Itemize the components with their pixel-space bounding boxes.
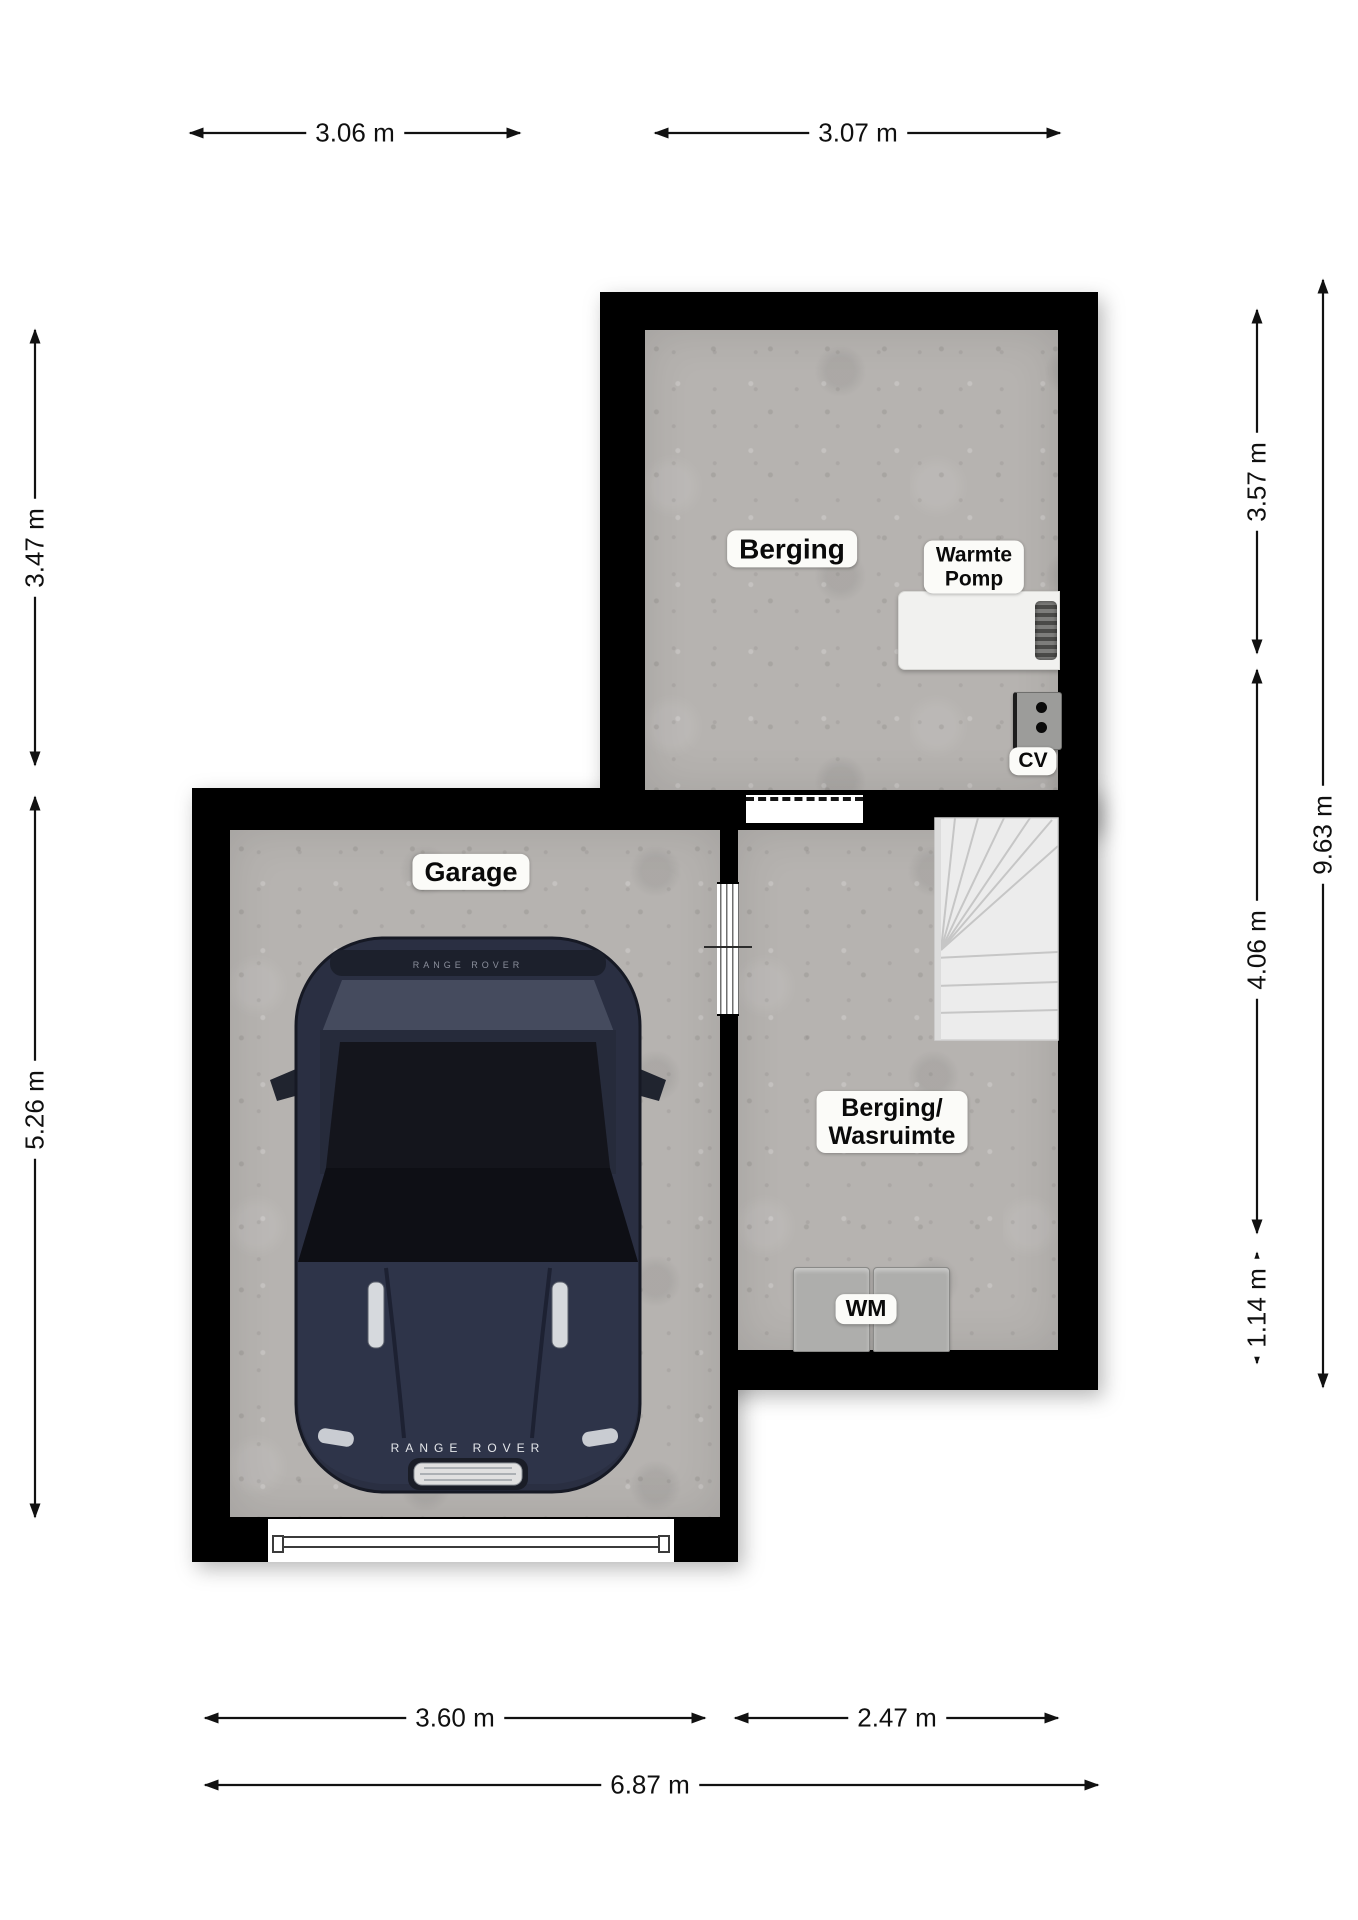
room-label-berging: Berging [727,530,857,567]
warmte-pomp-line1: Warmte [936,543,1012,567]
room-label-garage: Garage [412,854,529,890]
door-tick [704,946,752,948]
dim-label-bottom-total: 6.87 m [601,1771,699,1798]
heat-pump-vent [1035,601,1057,660]
appliance-label-cv: CV [1009,747,1056,775]
cv-boiler [1013,692,1062,750]
appliance-label-wm: WM [836,1294,897,1324]
dim-label-bottom-1: 3.60 m [406,1704,504,1731]
garage-storage-door [717,882,739,1016]
dim-label-top-1: 3.06 m [306,119,404,146]
warmte-pomp-line2: Pomp [936,567,1012,591]
window-dash [746,797,863,801]
cv-knob-top [1036,702,1047,713]
dim-label-top-2: 3.07 m [809,119,907,146]
dim-label-left-1: 3.47 m [21,499,48,597]
berging-window [746,795,863,823]
floorplan-canvas: RANGE ROVER RANGE ROVER [0,0,1358,1920]
room-label-berging-wasruimte: Berging/ Wasruimte [817,1091,968,1153]
appliance-label-warmte-pomp: Warmte Pomp [924,540,1024,593]
cv-knob-bottom [1036,722,1047,733]
garage-floor [230,830,720,1517]
dim-label-right-1: 3.57 m [1243,433,1270,531]
dim-label-bottom-2: 2.47 m [848,1704,946,1731]
garage-door-panel [273,1536,669,1548]
dim-label-right-total: 9.63 m [1309,786,1336,884]
room-label-berging-wasruimte-line1: Berging/ [829,1094,956,1122]
room-label-berging-wasruimte-line2: Wasruimte [829,1122,956,1150]
dim-label-right-2: 4.06 m [1243,901,1270,999]
dim-label-right-3: 1.14 m [1243,1259,1270,1357]
heat-pump-appliance [898,591,1060,670]
garage-door [268,1519,674,1562]
dim-label-left-2: 5.26 m [21,1061,48,1159]
